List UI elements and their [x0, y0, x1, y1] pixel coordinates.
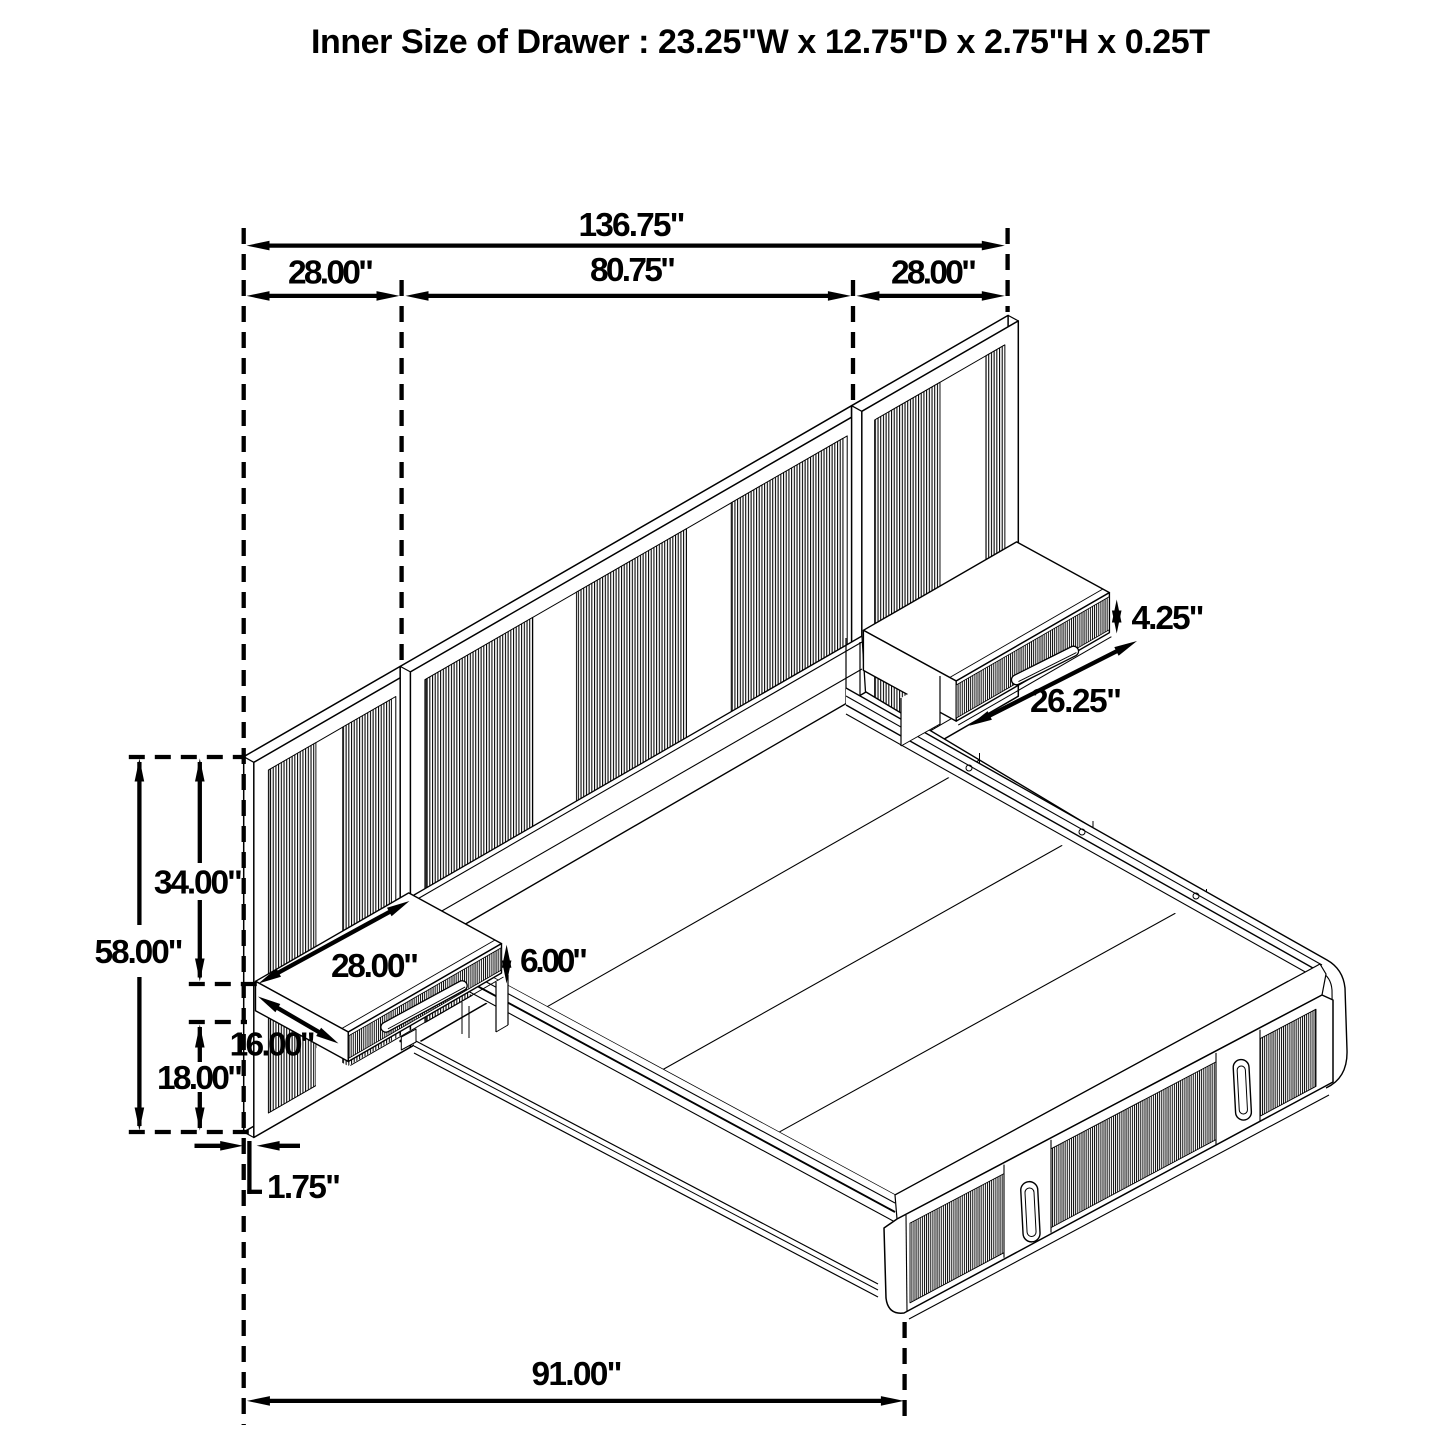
svg-text:16.00": 16.00": [230, 1027, 316, 1064]
svg-text:80.75": 80.75": [590, 252, 676, 289]
svg-text:26.25": 26.25": [1030, 683, 1122, 720]
svg-text:136.75": 136.75": [579, 207, 686, 244]
svg-text:28.00": 28.00": [331, 948, 419, 985]
svg-text:Inner Size of Drawer : 23.25"W: Inner Size of Drawer : 23.25"W x 12.75"D…: [311, 23, 1210, 61]
svg-text:34.00": 34.00": [154, 865, 243, 902]
svg-text:58.00": 58.00": [95, 934, 184, 971]
svg-text:18.00": 18.00": [157, 1060, 243, 1097]
svg-text:28.00": 28.00": [288, 255, 374, 292]
svg-text:91.00": 91.00": [532, 1356, 623, 1393]
svg-text:28.00": 28.00": [891, 255, 977, 292]
svg-text:1.75": 1.75": [267, 1169, 341, 1206]
svg-text:4.25": 4.25": [1132, 600, 1205, 637]
svg-text:6.00": 6.00": [520, 943, 588, 980]
